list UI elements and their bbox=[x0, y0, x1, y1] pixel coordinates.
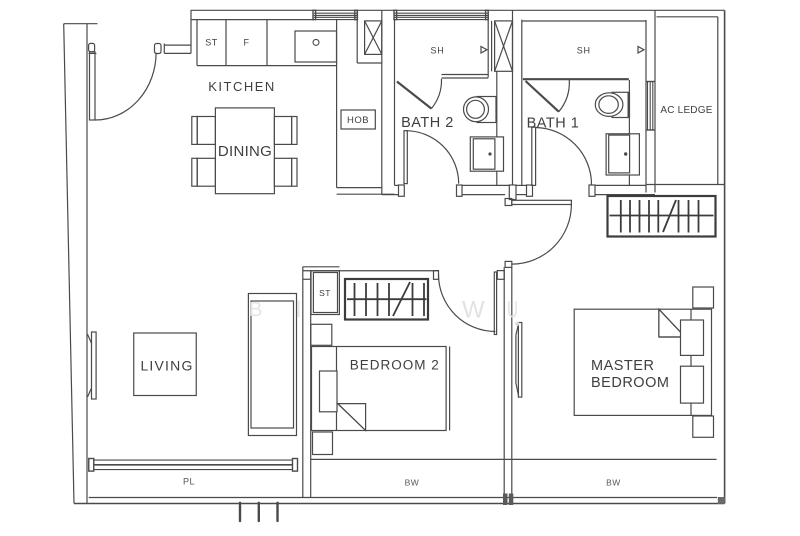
svg-text:SH: SH bbox=[577, 45, 591, 55]
svg-text:LIVING: LIVING bbox=[140, 357, 193, 373]
svg-text:BATH 2: BATH 2 bbox=[401, 115, 454, 131]
svg-text:I: I bbox=[295, 296, 302, 323]
svg-text:ST: ST bbox=[205, 37, 218, 47]
svg-text:MASTER: MASTER bbox=[591, 358, 654, 374]
svg-text:HOB: HOB bbox=[347, 115, 369, 126]
svg-text:W: W bbox=[462, 297, 485, 324]
svg-text:SH: SH bbox=[430, 45, 444, 55]
svg-text:B: B bbox=[249, 299, 262, 321]
svg-text:BW: BW bbox=[405, 478, 420, 488]
svg-text:U: U bbox=[507, 297, 518, 324]
svg-text:BEDROOM 2: BEDROOM 2 bbox=[350, 358, 440, 373]
svg-text:KITCHEN: KITCHEN bbox=[208, 79, 276, 94]
svg-text:DINING: DINING bbox=[218, 143, 272, 160]
svg-text:BW: BW bbox=[606, 478, 621, 488]
svg-text:BEDROOM: BEDROOM bbox=[591, 375, 669, 391]
svg-text:PL: PL bbox=[183, 477, 195, 487]
svg-text:F: F bbox=[244, 37, 250, 47]
svg-text:AC LEDGE: AC LEDGE bbox=[660, 105, 712, 116]
svg-text:BATH 1: BATH 1 bbox=[527, 115, 580, 131]
svg-text:ST: ST bbox=[319, 288, 331, 298]
